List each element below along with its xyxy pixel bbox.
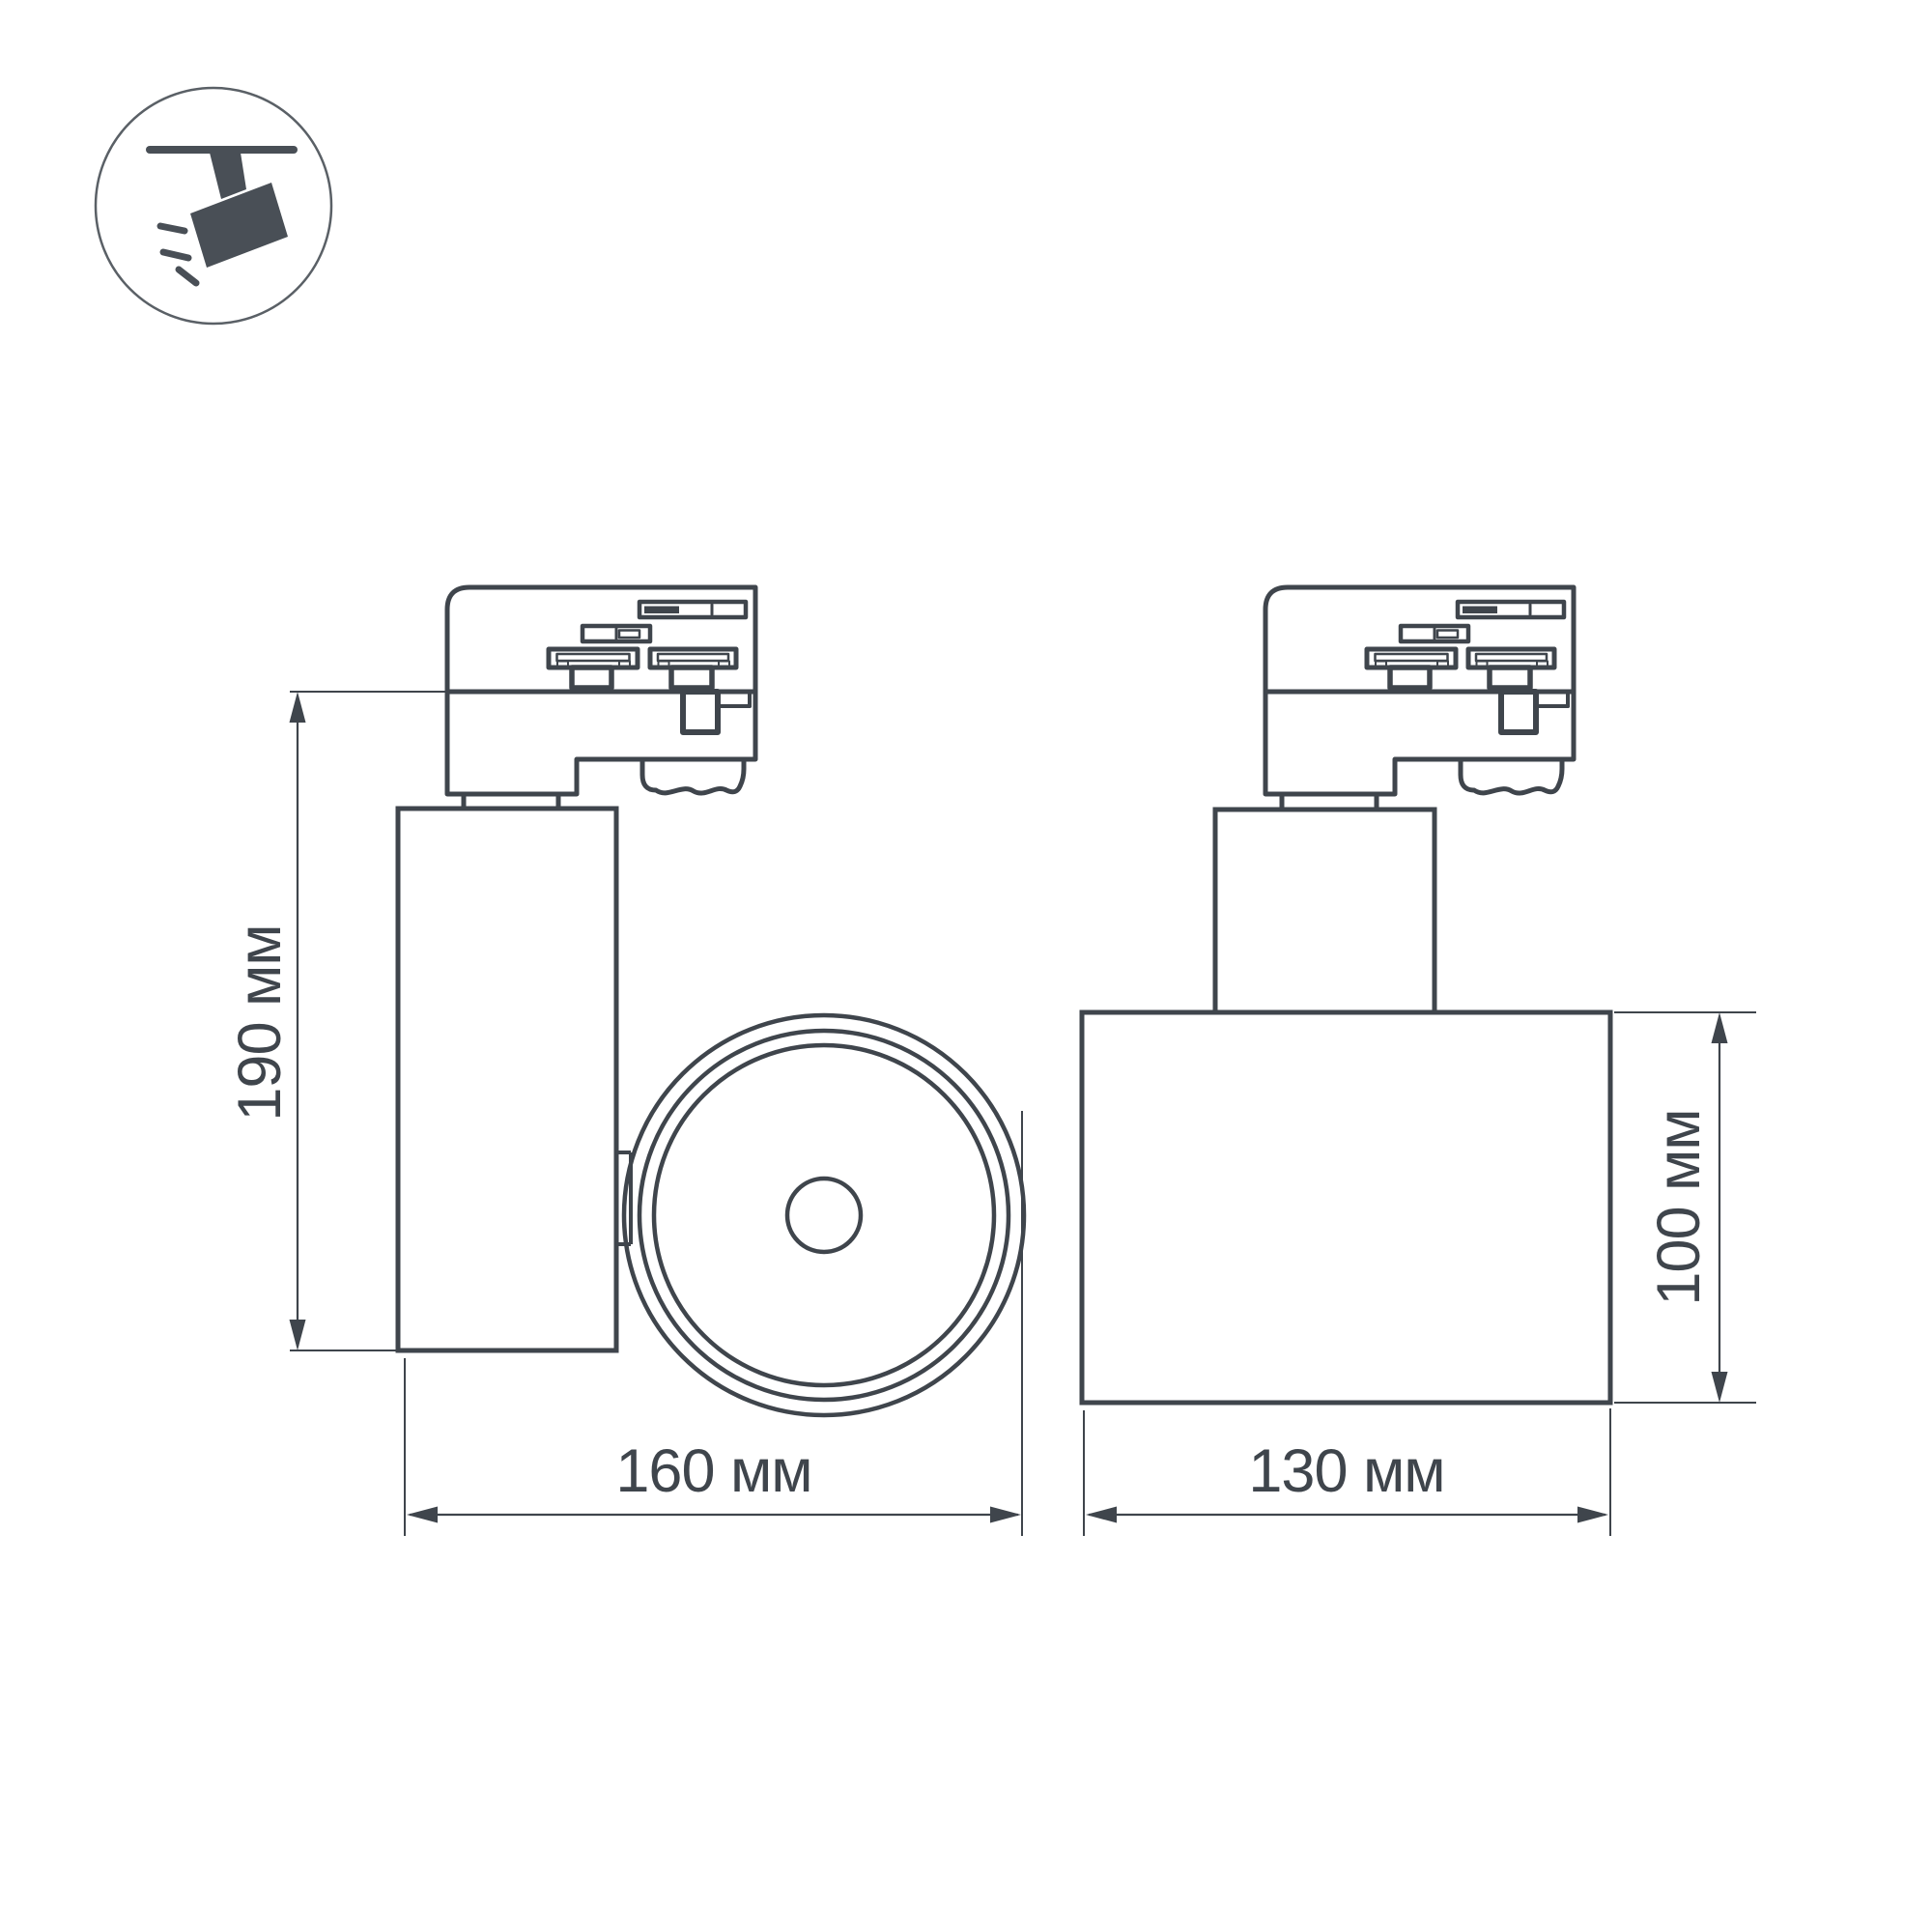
side-view-drawing xyxy=(398,587,1024,1415)
icon-light-ray xyxy=(163,252,188,258)
dimension-front-height: 100 мм xyxy=(1614,1012,1756,1403)
drawing-canvas: 190 мм 160 мм 130 мм 100 мм xyxy=(0,0,1932,1932)
arrowhead-up xyxy=(290,692,306,723)
lens-outer-ring xyxy=(624,1015,1024,1415)
arrowhead-left xyxy=(407,1507,438,1523)
track-adapter-front xyxy=(1265,587,1574,810)
lens-face xyxy=(624,1015,1024,1415)
dimension-label-130: 130 мм xyxy=(1248,1437,1444,1505)
lens-middle-ring xyxy=(639,1031,1009,1400)
lamp-body-side xyxy=(398,809,616,1350)
dimension-label-100: 100 мм xyxy=(1645,1109,1713,1305)
arrowhead-down xyxy=(290,1320,306,1350)
arrowhead-right xyxy=(990,1507,1021,1523)
front-view-drawing xyxy=(1082,587,1610,1403)
lamp-neck-front xyxy=(1215,810,1435,1013)
track-adapter-side xyxy=(447,587,755,810)
icon-light-ray xyxy=(160,226,185,231)
dimension-drawing-svg: 190 мм 160 мм 130 мм 100 мм xyxy=(0,0,1932,1932)
icon-light-ray xyxy=(179,270,196,283)
dimension-front-width: 130 мм xyxy=(1084,1408,1610,1536)
lens-inner-ring xyxy=(654,1045,994,1385)
arrowhead-up xyxy=(1712,1012,1728,1043)
lamp-body-front xyxy=(1082,1012,1610,1403)
dimension-label-160: 160 мм xyxy=(615,1437,811,1505)
arrowhead-down xyxy=(1712,1372,1728,1403)
led-center xyxy=(787,1179,861,1252)
track-spotlight-icon xyxy=(96,88,331,324)
arrowhead-left xyxy=(1086,1507,1117,1523)
dimension-label-190: 190 мм xyxy=(226,924,294,1121)
icon-lamp-head xyxy=(190,183,288,268)
arrowhead-right xyxy=(1577,1507,1608,1523)
icon-stem xyxy=(210,153,246,199)
